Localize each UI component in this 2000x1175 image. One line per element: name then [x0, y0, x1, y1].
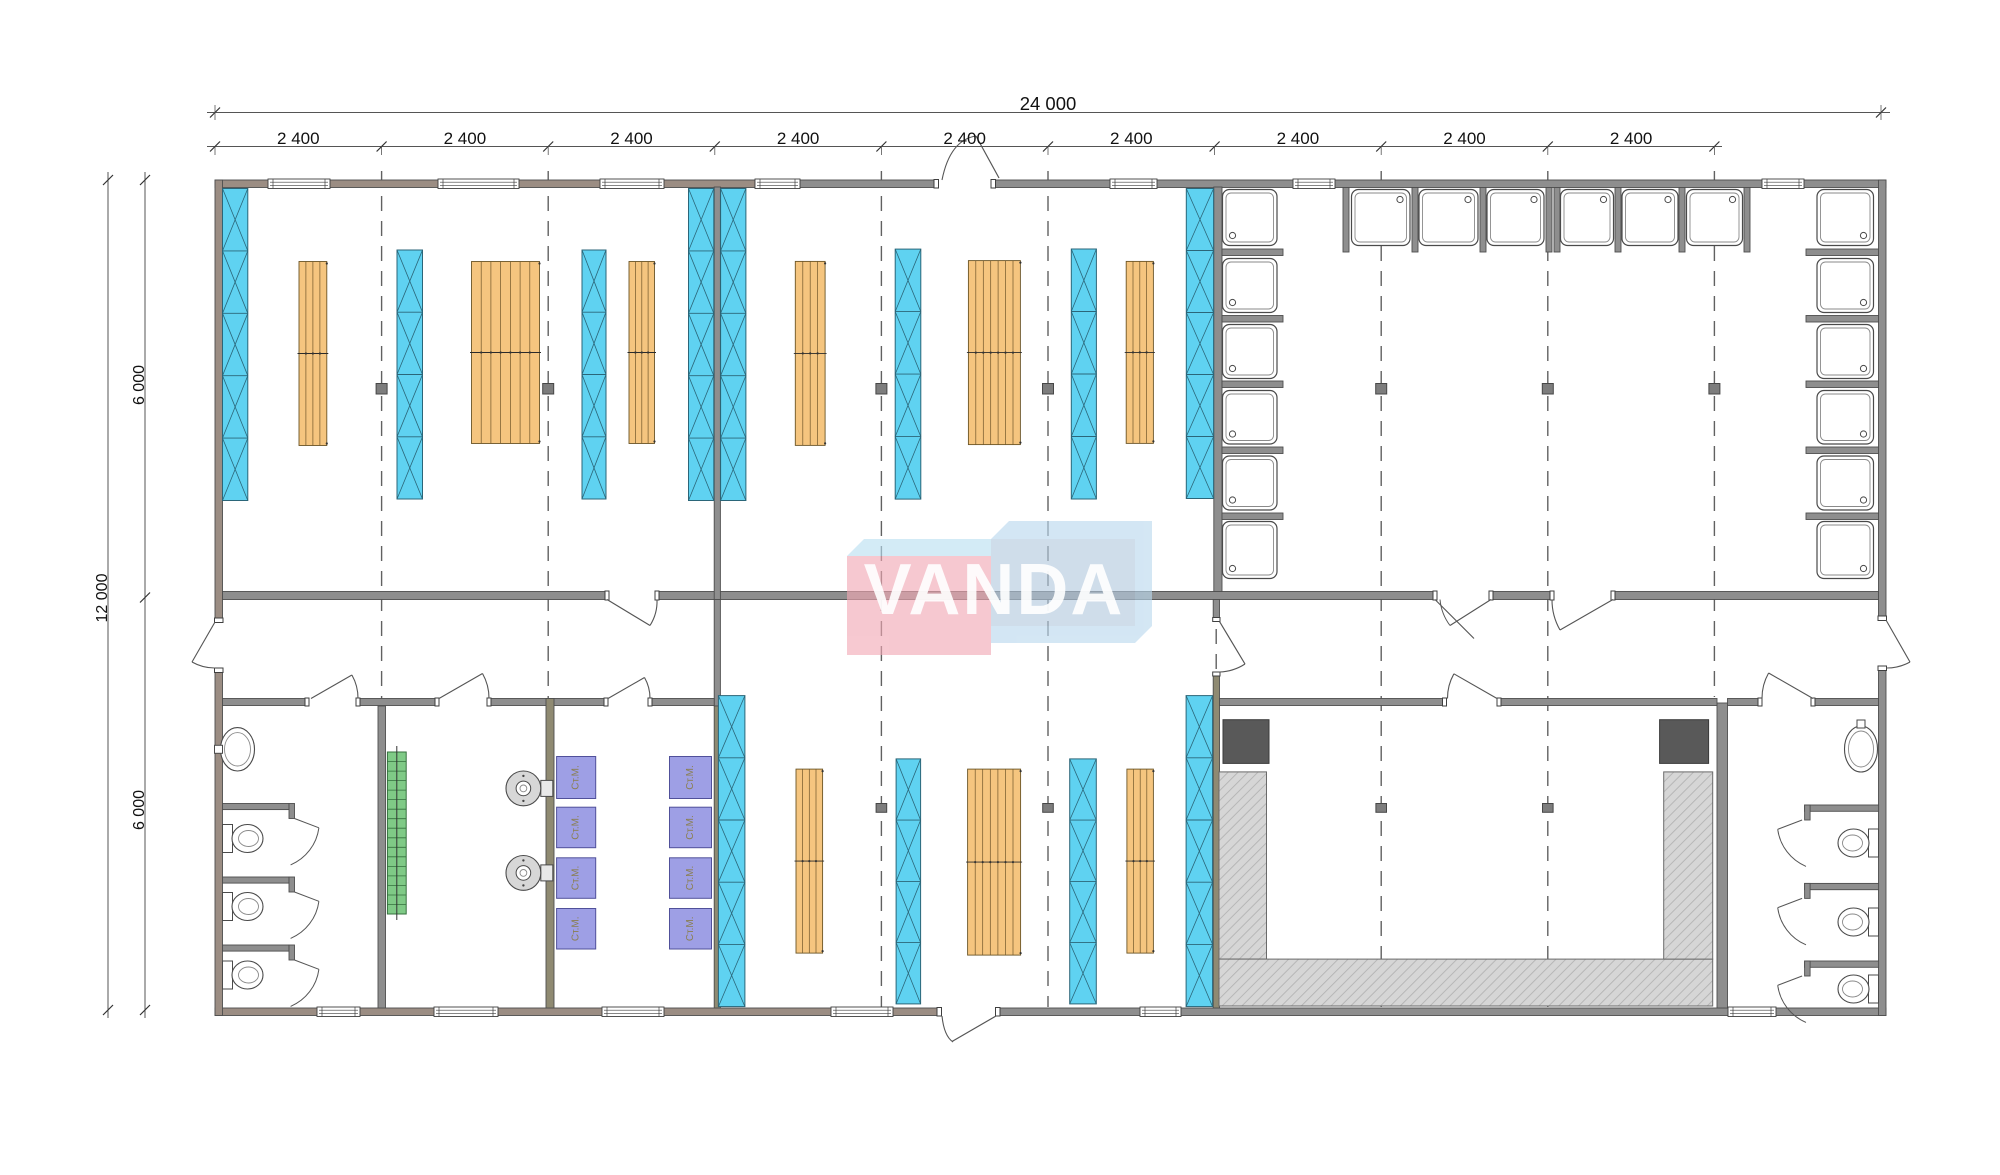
- svg-text:6 000: 6 000: [131, 365, 148, 405]
- svg-text:Ст.М.: Ст.М.: [571, 765, 582, 790]
- svg-text:2 400: 2 400: [777, 129, 820, 148]
- svg-text:Ст.М.: Ст.М.: [571, 815, 582, 840]
- svg-text:12 000: 12 000: [94, 573, 111, 622]
- svg-text:Ст.М.: Ст.М.: [571, 866, 582, 891]
- svg-text:24 000: 24 000: [1020, 93, 1077, 114]
- svg-text:2 400: 2 400: [1277, 129, 1320, 148]
- svg-text:2 400: 2 400: [1610, 129, 1653, 148]
- svg-text:Ст.М.: Ст.М.: [685, 815, 696, 840]
- svg-text:Ст.М.: Ст.М.: [571, 917, 582, 942]
- svg-text:Ст.М.: Ст.М.: [685, 917, 696, 942]
- svg-text:2 400: 2 400: [277, 129, 320, 148]
- svg-text:Ст.М.: Ст.М.: [685, 765, 696, 790]
- svg-text:Ст.М.: Ст.М.: [685, 866, 696, 891]
- svg-text:2 400: 2 400: [444, 129, 487, 148]
- svg-text:2 400: 2 400: [1110, 129, 1153, 148]
- svg-text:VANDA: VANDA: [864, 550, 1125, 630]
- svg-text:2 400: 2 400: [610, 129, 653, 148]
- svg-text:2 400: 2 400: [1443, 129, 1486, 148]
- svg-text:6 000: 6 000: [131, 790, 148, 830]
- svg-text:2 400: 2 400: [943, 129, 986, 148]
